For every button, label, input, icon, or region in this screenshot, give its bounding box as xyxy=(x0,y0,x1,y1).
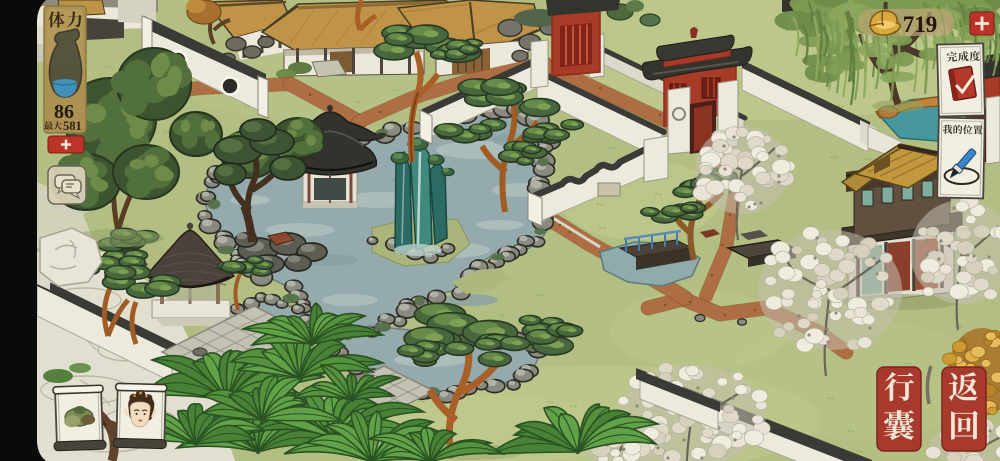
svg-text:581: 581 xyxy=(63,119,82,133)
svg-text:719: 719 xyxy=(903,12,938,37)
